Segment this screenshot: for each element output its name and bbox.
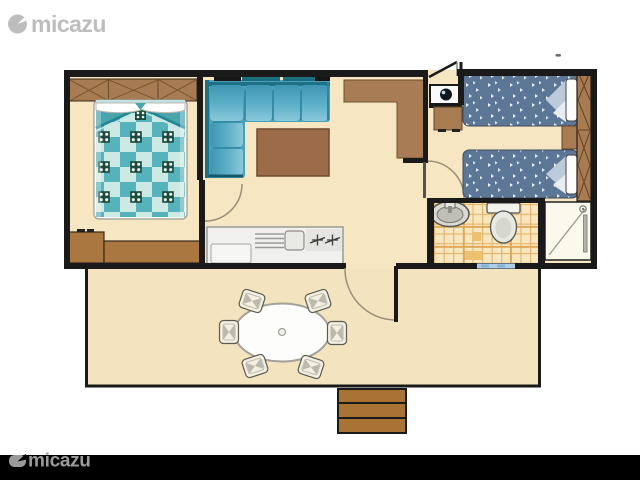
svg-text:micazu: micazu [31, 11, 106, 37]
svg-text:micazu: micazu [28, 451, 91, 472]
